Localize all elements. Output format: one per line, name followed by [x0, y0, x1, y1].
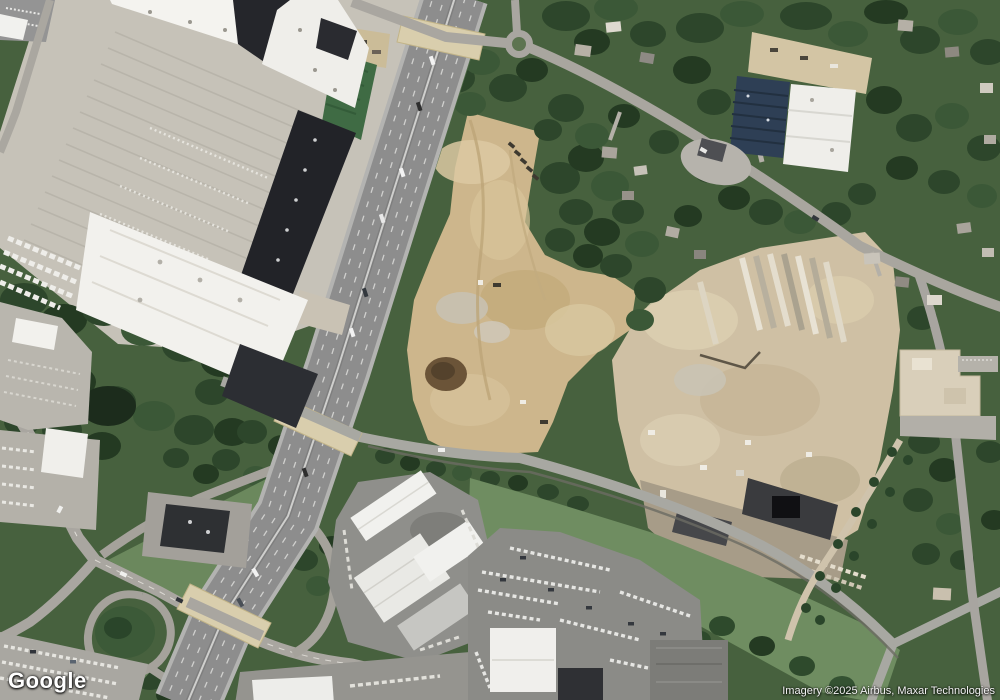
roundabout [509, 34, 530, 55]
google-logo[interactable]: Google [8, 668, 87, 694]
white-industrial-building [783, 84, 856, 172]
dark-roof-building-south [558, 668, 603, 700]
map-viewport[interactable]: Google Imagery ©2025 Airbus, Maxar Techn… [0, 0, 1000, 700]
office-building-dark [142, 492, 252, 568]
small-building-2 [41, 428, 88, 478]
warehouse-district [328, 470, 492, 662]
imagery-attribution: Imagery ©2025 Airbus, Maxar Technologies [782, 685, 995, 697]
satellite-imagery[interactable] [0, 0, 1000, 700]
bottom-white-building [252, 676, 334, 700]
solar-roof-building [730, 76, 790, 158]
